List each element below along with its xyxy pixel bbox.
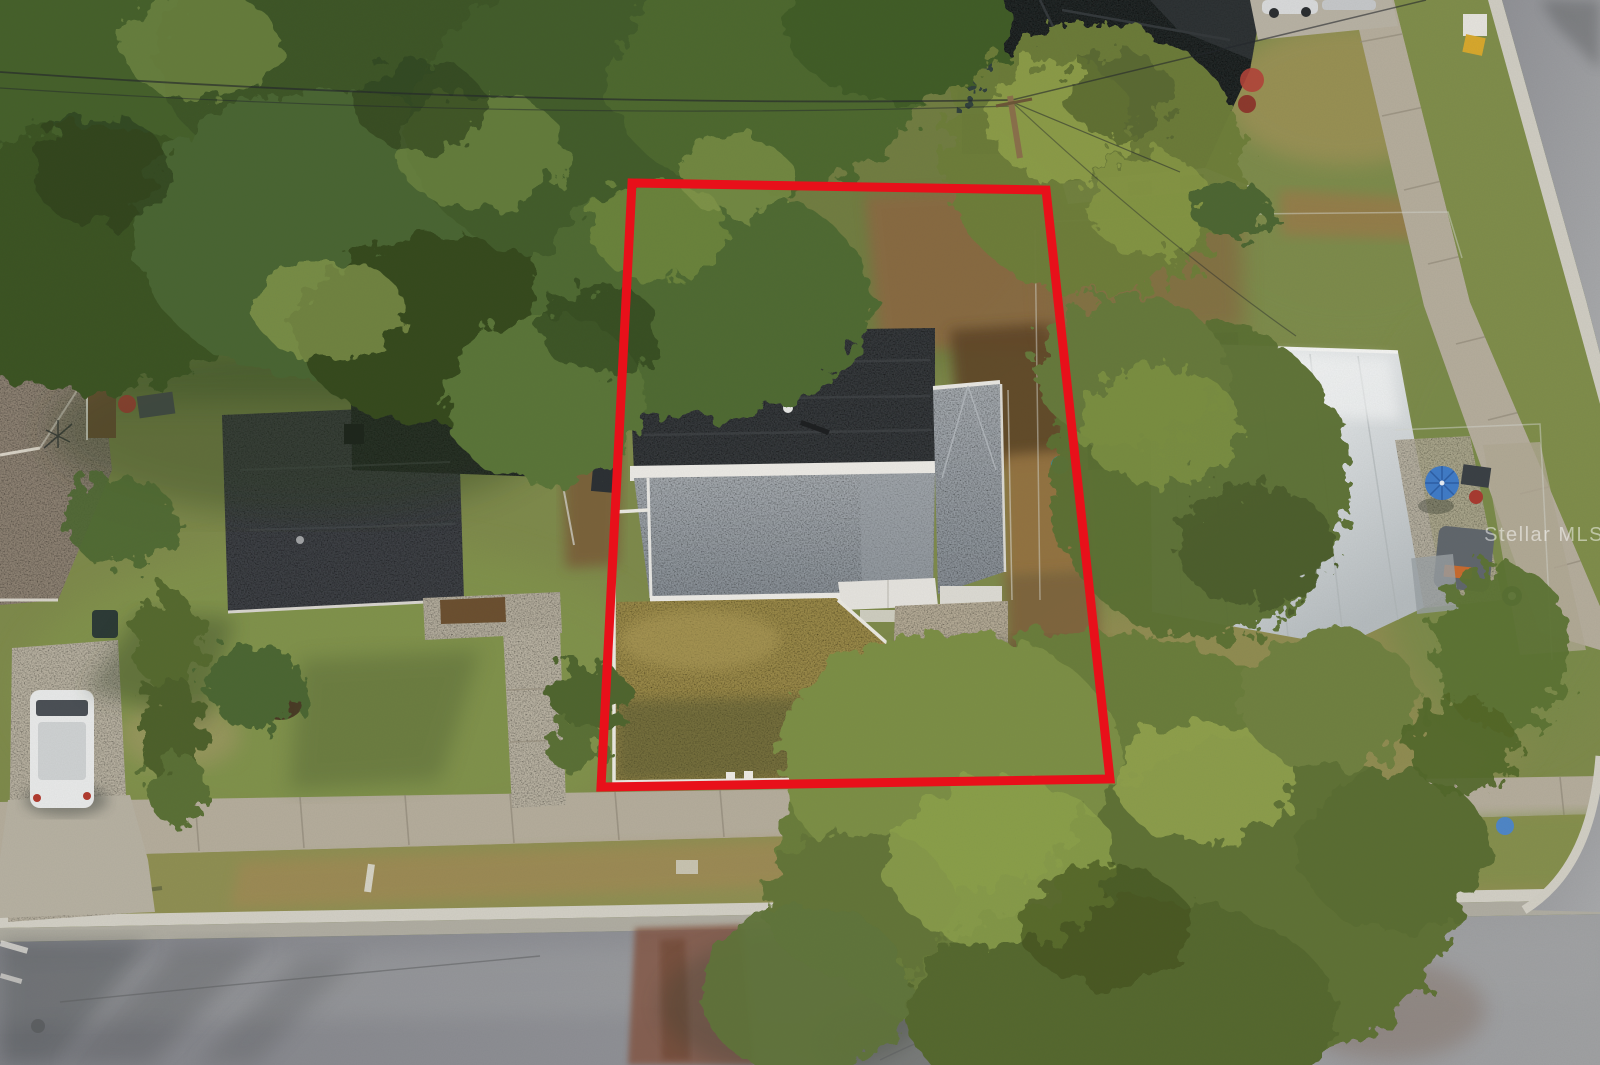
photo-grain-overlay bbox=[0, 0, 1600, 1065]
aerial-photo: Stellar MLS bbox=[0, 0, 1600, 1065]
watermark: Stellar MLS bbox=[1484, 524, 1600, 546]
aerial-photo-canvas: Stellar MLS bbox=[0, 0, 1600, 1065]
